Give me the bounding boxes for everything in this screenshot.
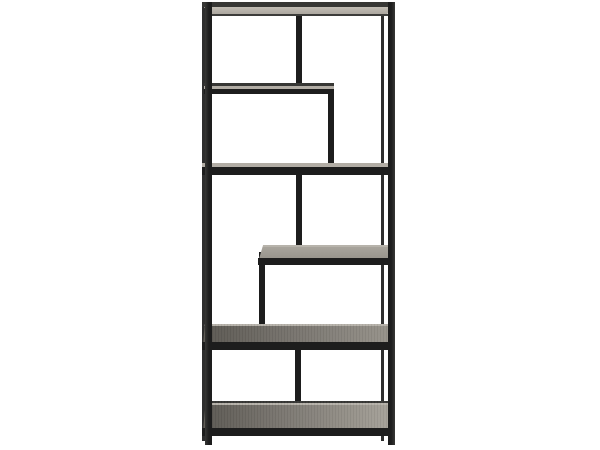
- bookcase-top-section-divider: [296, 5, 302, 85]
- bookcase-bottom-shelf-surface: [203, 401, 394, 430]
- bookcase-front-left-leg: [205, 2, 212, 445]
- bookcase-front-right-leg: [388, 2, 395, 445]
- bookcase-left-offset-shelf: [204, 83, 334, 94]
- bookcase-right-offset-shelf-edge: [258, 258, 395, 265]
- bookcase-back-right-leg: [381, 4, 384, 441]
- bookcase-top-frame-bar: [202, 2, 395, 7]
- bookcase: [202, 2, 395, 445]
- bookcase-lower-middle-shelf-surface: [203, 324, 394, 344]
- bookcase-mid-section-divider: [296, 173, 302, 248]
- bookcase-right-offset-shelf-surface: [259, 245, 395, 259]
- bookcase-bottom-shelf-edge: [202, 428, 395, 436]
- bookcase-shelf2-end-post: [328, 87, 334, 168]
- bookcase-bottom-section-divider: [295, 347, 301, 405]
- bookcase-top-shelf-front-edge: [207, 14, 390, 16]
- bookcase-lower-middle-shelf-edge: [202, 342, 395, 350]
- product-photo: [0, 0, 600, 450]
- bookcase-upper-middle-shelf: [202, 163, 395, 175]
